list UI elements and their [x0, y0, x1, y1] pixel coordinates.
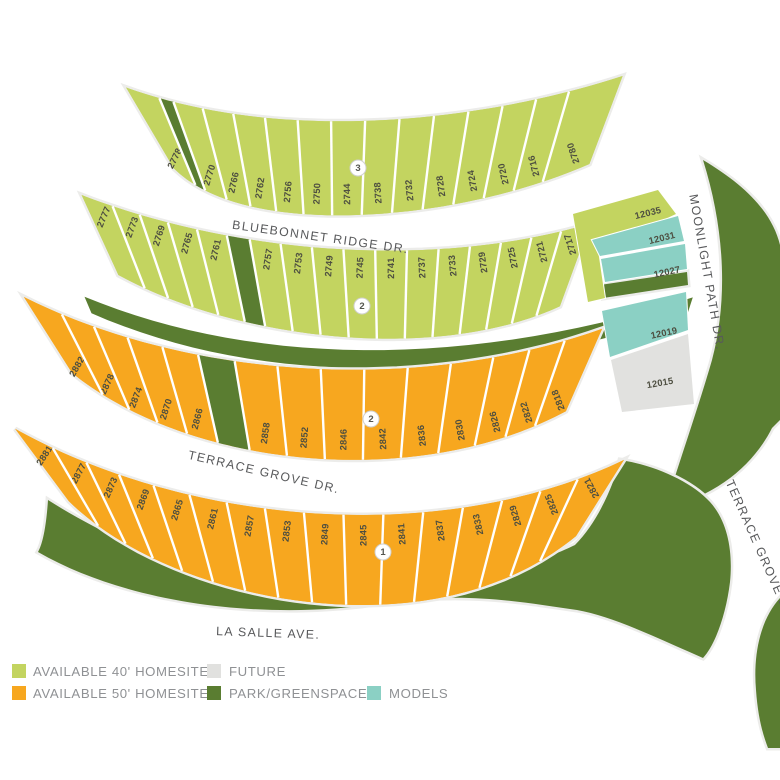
lot-number-2738: 2738 [372, 182, 383, 204]
lot-number-2756: 2756 [282, 181, 294, 203]
street-label-la-salle-ave--2: LA SALLE AVE. [216, 624, 321, 642]
legend-label-available-40-homesites: AVAILABLE 40' HOMESITES [33, 664, 218, 679]
legend: AVAILABLE 40' HOMESITESFUTUREAVAILABLE 5… [12, 664, 448, 701]
legend-item-models: MODELS [367, 686, 448, 701]
lot-number-2841: 2841 [396, 523, 407, 545]
lot-divider [331, 121, 332, 215]
marker-number: 1 [380, 547, 386, 558]
lot-number-2846: 2846 [338, 429, 348, 451]
community-site-map: 2778277027662762275627502744273827322728… [0, 0, 780, 780]
lot-number-2842: 2842 [377, 428, 388, 450]
legend-label-future: FUTURE [229, 664, 286, 679]
legend-swatch-future [207, 664, 221, 678]
marker-number: 2 [368, 414, 373, 425]
lot-number-2741: 2741 [386, 257, 396, 279]
lot-number-2750: 2750 [312, 183, 323, 205]
legend-item-park-greenspace: PARK/GREENSPACE [207, 686, 367, 701]
lot-divider [375, 251, 377, 339]
legend-item-future: FUTURE [207, 664, 286, 679]
lot-number-2845: 2845 [358, 524, 368, 546]
lot-number-2733: 2733 [447, 254, 459, 276]
legend-swatch-park-greenspace [207, 686, 221, 700]
marker-number: 3 [355, 163, 360, 174]
legend-item-available-40-homesites: AVAILABLE 40' HOMESITES [12, 664, 218, 679]
site-map-canvas: 2778277027662762275627502744273827322728… [0, 0, 780, 780]
lot-number-2744: 2744 [342, 183, 352, 205]
legend-label-available-50-homesites: AVAILABLE 50' HOMESITES [33, 686, 218, 701]
lot-number-2849: 2849 [319, 523, 330, 545]
legend-label-park-greenspace: PARK/GREENSPACE [229, 686, 367, 701]
phase-marker-2-1: 2 [354, 298, 370, 314]
legend-item-available-50-homesites: AVAILABLE 50' HOMESITES [12, 686, 218, 701]
moonlight-path-block: 1203512031120271201912015 [573, 190, 694, 412]
legend-swatch-available-40-homesites [12, 664, 26, 678]
phase-marker-2-2: 2 [363, 411, 379, 427]
legend-swatch-available-50-homesites [12, 686, 26, 700]
lot-number-2749: 2749 [323, 255, 335, 277]
legend-swatch-models [367, 686, 381, 700]
phase-marker-1-3: 1 [375, 544, 391, 560]
lot-number-2737: 2737 [417, 257, 428, 279]
lot-number-2745: 2745 [355, 257, 366, 279]
row-bluebonnet-north: 2778277027662762275627502744273827322728… [126, 76, 622, 215]
park-east-edge-sliver [755, 598, 780, 748]
marker-number: 2 [359, 301, 364, 312]
legend-label-models: MODELS [389, 686, 448, 701]
lot-number-2852: 2852 [299, 426, 311, 448]
phase-marker-3-0: 3 [350, 160, 366, 176]
